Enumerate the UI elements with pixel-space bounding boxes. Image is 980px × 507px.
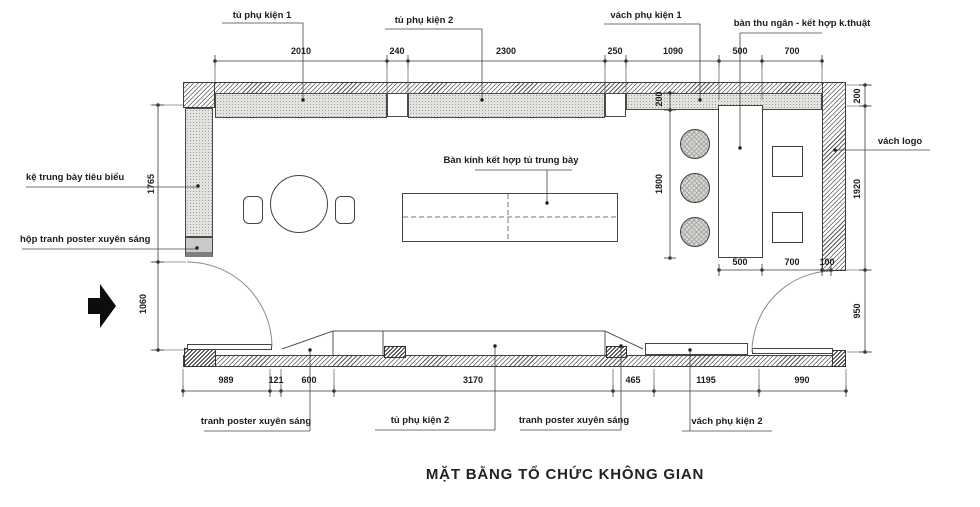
dim-left-1765: 1765: [146, 164, 158, 204]
dim-top-700: 700: [772, 46, 812, 56]
drawing-line-overlay: [0, 0, 980, 507]
callout-logo-wall: vách logo: [855, 136, 945, 147]
dim-top-2300: 2300: [486, 46, 526, 56]
dim-top-2010: 2010: [281, 46, 321, 56]
callout-accessory-panel-1: vách phụ kiện 1: [586, 10, 706, 21]
dim-bottom-3170: 3170: [453, 375, 493, 385]
dim-bottom-990: 990: [782, 375, 822, 385]
dim-right-950: 950: [852, 291, 864, 331]
dim-bottom-465: 465: [613, 375, 653, 385]
callout-cabinet-1: tủ phụ kiện 1: [202, 10, 322, 21]
dim-inner-1800: 1800: [654, 164, 666, 204]
glass-table-dashed-lines: [403, 194, 617, 241]
dim-right-200: 200: [852, 76, 864, 116]
door-swing-arcs: [187, 262, 833, 352]
dim-bottom-600: 600: [289, 375, 329, 385]
dim-cashier-500: 500: [720, 257, 760, 267]
dim-top-500: 500: [720, 46, 760, 56]
drawing-title: MẶT BẰNG TỔ CHỨC KHÔNG GIAN: [315, 466, 815, 483]
dimension-lines: [150, 55, 872, 397]
callout-cashier-desk: bàn thu ngân - kết hợp k.thuật: [702, 18, 902, 29]
callout-accessory-panel-2: vách phụ kiện 2: [667, 416, 787, 427]
dim-left-1060: 1060: [138, 284, 150, 324]
callout-poster-bottom-1: tranh poster xuyên sáng: [196, 416, 316, 427]
callout-feature-shelf: kệ trung bày tiêu biểu: [26, 172, 146, 183]
callout-cabinet-2-bottom: tủ phụ kiện 2: [360, 415, 480, 426]
dim-top-240: 240: [377, 46, 417, 56]
dim-top-250: 250: [595, 46, 635, 56]
entrance-arrow-icon: [88, 284, 116, 328]
bottom-display-stand: [282, 331, 643, 355]
floor-plan-canvas: tủ phụ kiện 1 tủ phụ kiện 2 vách phụ kiệ…: [0, 0, 980, 507]
dim-top-1090: 1090: [653, 46, 693, 56]
callout-poster-bottom-2: tranh poster xuyên sáng: [514, 415, 634, 426]
callout-cabinet-2-top: tủ phụ kiện 2: [364, 15, 484, 26]
dim-cashier-700: 700: [772, 257, 812, 267]
leader-dots: [195, 98, 836, 351]
dim-cashier-100: 100: [807, 257, 847, 267]
dim-bottom-989: 989: [206, 375, 246, 385]
dim-right-1920: 1920: [852, 169, 864, 209]
dim-inner-200: 200: [654, 79, 666, 119]
callout-glass-table: Bàn kính kết hợp tủ trung bày: [421, 155, 601, 166]
dim-bottom-1195: 1195: [686, 375, 726, 385]
callout-poster-lightbox: hộp tranh poster xuyên sáng: [20, 234, 160, 245]
